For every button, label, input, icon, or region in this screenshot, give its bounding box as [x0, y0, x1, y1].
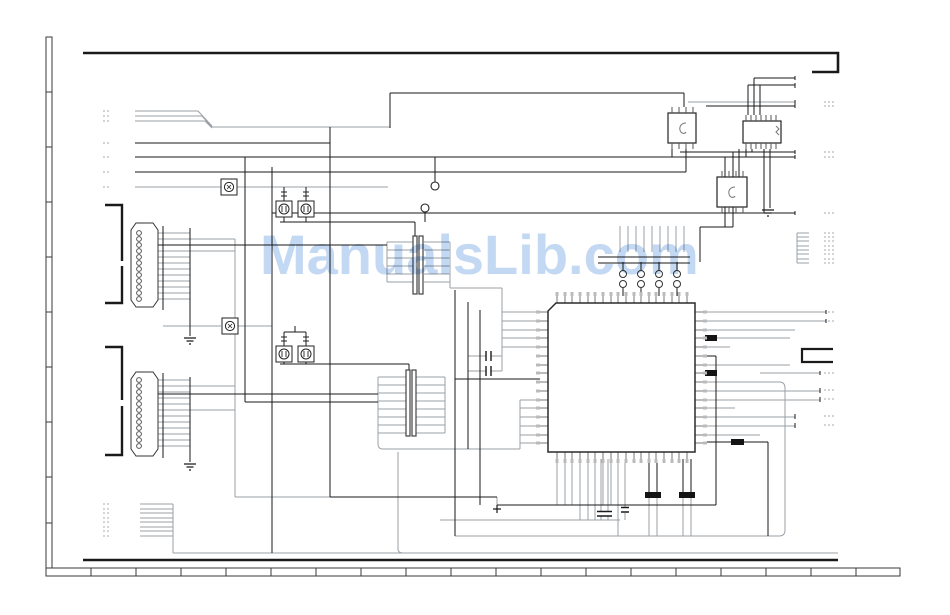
main-qfp-ic — [536, 292, 707, 463]
upper-pin-connector — [131, 223, 158, 307]
signal-wires-black — [135, 76, 826, 553]
transformer-2 — [406, 370, 416, 436]
offpage-reference-dashes-left — [103, 111, 111, 536]
small-ic-a — [668, 107, 696, 149]
dip-ic — [743, 115, 781, 149]
schematic-drawing — [0, 0, 950, 615]
connector-bracket-lower — [105, 347, 122, 455]
optocoupler-1 — [221, 179, 237, 195]
sheet-border-top — [83, 53, 838, 72]
left-ruler-scale — [46, 37, 52, 568]
optocoupler-2 — [222, 318, 238, 334]
manualslib-watermark: ManualsLib.com — [260, 222, 699, 287]
bottom-ruler-scale — [46, 568, 900, 576]
lower-pin-connector — [131, 372, 158, 456]
small-ic-c — [717, 171, 747, 213]
offpage-reference-dashes-right — [824, 102, 836, 425]
transistor-pair-lower — [276, 337, 314, 362]
connector-bracket-upper — [105, 205, 122, 303]
schematic-page: ManualsLib.com — [0, 0, 950, 615]
test-points — [421, 182, 439, 212]
right-edge-bracket — [802, 349, 833, 362]
